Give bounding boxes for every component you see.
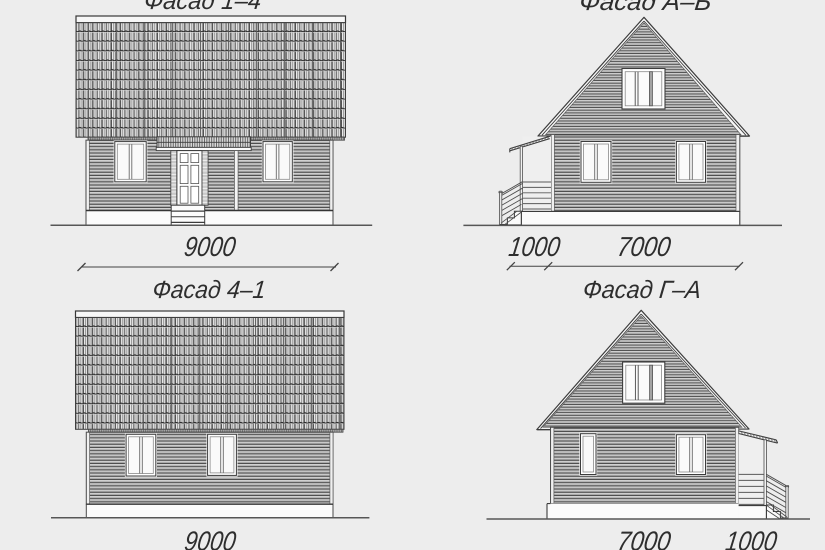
svg-text:7000: 7000 xyxy=(615,526,673,550)
svg-text:Фасад 4–1: Фасад 4–1 xyxy=(151,276,267,304)
svg-text:Фасад 1–4: Фасад 1–4 xyxy=(143,0,263,15)
svg-text:9000: 9000 xyxy=(182,231,238,262)
svg-text:Фасад А–Б: Фасад А–Б xyxy=(578,0,713,16)
svg-text:1000: 1000 xyxy=(724,526,780,550)
svg-text:7000: 7000 xyxy=(615,231,673,262)
svg-text:Фасад Г–А: Фасад Г–А xyxy=(582,276,703,304)
svg-text:9000: 9000 xyxy=(183,526,239,550)
svg-text:1000: 1000 xyxy=(507,231,563,262)
